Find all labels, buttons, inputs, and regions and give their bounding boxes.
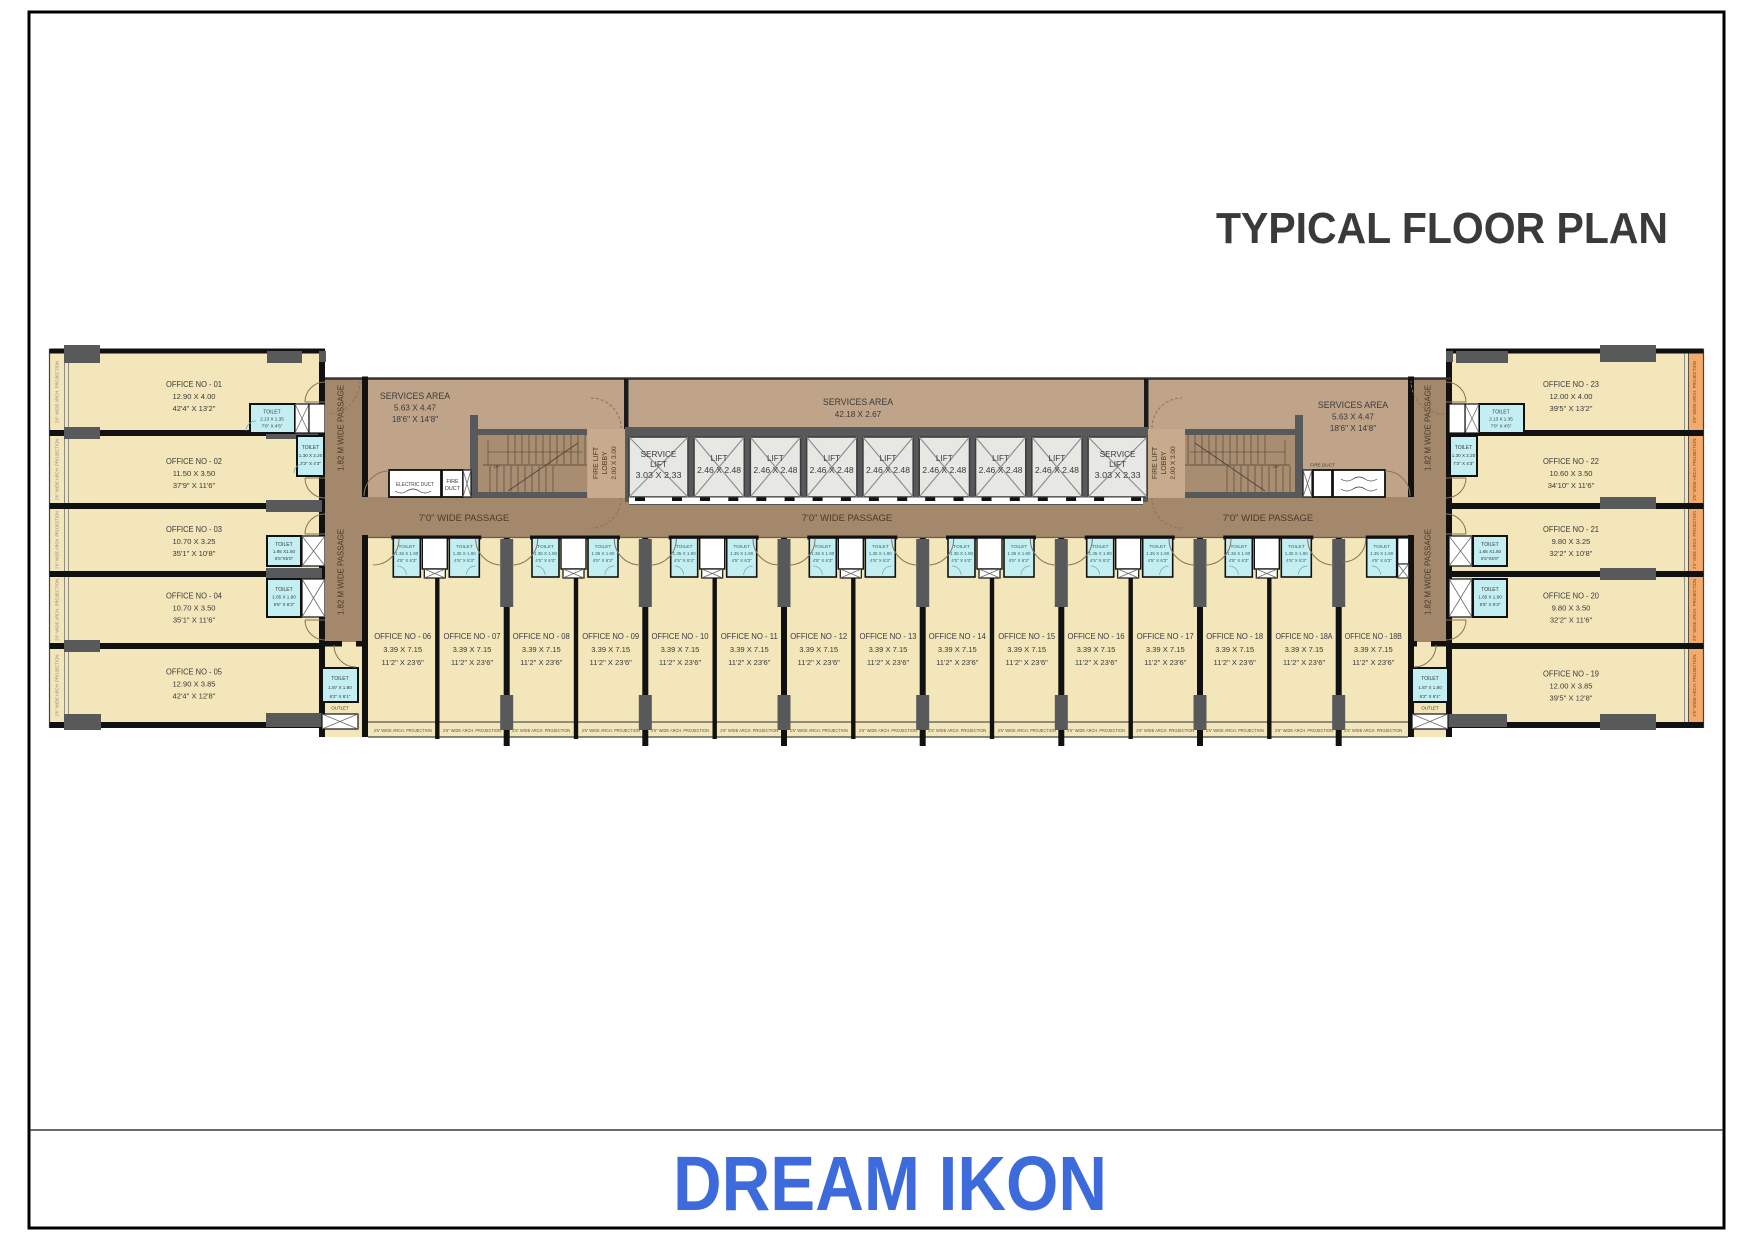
svg-text:2'6" WIDE ARCH. PROJECTION: 2'6" WIDE ARCH. PROJECTION xyxy=(1136,728,1194,733)
svg-text:TOILET: TOILET xyxy=(872,544,889,550)
svg-text:TOILET: TOILET xyxy=(1492,410,1509,416)
svg-text:11.50 X 3.50: 11.50 X 3.50 xyxy=(173,469,216,478)
svg-text:2.46 X 2.48: 2.46 X 2.48 xyxy=(922,466,967,475)
svg-text:TOILET: TOILET xyxy=(331,676,348,682)
svg-text:9.80 X 3.50: 9.80 X 3.50 xyxy=(1552,604,1591,613)
svg-text:2.13 X 1.35: 2.13 X 1.35 xyxy=(260,417,284,422)
svg-text:TOILET: TOILET xyxy=(1455,445,1472,451)
svg-text:LOBBY: LOBBY xyxy=(1161,451,1168,475)
svg-text:OFFICE NO - 23: OFFICE NO - 23 xyxy=(1543,380,1599,389)
svg-text:12.90 X 4.00: 12.90 X 4.00 xyxy=(172,392,215,401)
svg-text:OFFICE NO - 04: OFFICE NO - 04 xyxy=(166,592,223,601)
svg-text:1.82 M WIDE PASSAGE: 1.82 M WIDE PASSAGE xyxy=(336,529,346,615)
svg-text:1.35 X 1.90: 1.35 X 1.90 xyxy=(534,551,558,556)
svg-text:7'3" X 4'3": 7'3" X 4'3" xyxy=(300,461,321,466)
svg-text:3.39 X 7.15: 3.39 X 7.15 xyxy=(1077,645,1116,654)
svg-text:4'5" X 6'3": 4'5" X 6'3" xyxy=(397,558,418,563)
svg-text:FIRE LIFT: FIRE LIFT xyxy=(1152,446,1159,479)
svg-text:11'2" X 23'6": 11'2" X 23'6" xyxy=(798,658,841,667)
svg-text:2.46 X 2.48: 2.46 X 2.48 xyxy=(866,466,911,475)
svg-text:4'5" X 6'3": 4'5" X 6'3" xyxy=(674,558,695,563)
svg-text:1.35 X 1.90: 1.35 X 1.90 xyxy=(1285,551,1309,556)
svg-text:3.39 X 7.15: 3.39 X 7.15 xyxy=(1285,645,1324,654)
svg-text:3.39 X 7.15: 3.39 X 7.15 xyxy=(522,645,561,654)
svg-text:11'2" X 23'6": 11'2" X 23'6" xyxy=(1283,658,1326,667)
svg-text:2'6" WIDE ARCH. PROJECTION: 2'6" WIDE ARCH. PROJECTION xyxy=(1692,361,1697,423)
svg-text:2.46 X 2.48: 2.46 X 2.48 xyxy=(697,466,742,475)
svg-text:11'2" X 23'6": 11'2" X 23'6" xyxy=(1214,658,1257,667)
svg-text:2'6" WIDE ARCH. PROJECTION: 2'6" WIDE ARCH. PROJECTION xyxy=(1692,439,1697,501)
svg-text:2'6" WIDE ARCH. PROJECTION: 2'6" WIDE ARCH. PROJECTION xyxy=(998,728,1056,733)
svg-text:11'2" X 23'6": 11'2" X 23'6" xyxy=(1006,658,1049,667)
svg-text:OFFICE NO - 12: OFFICE NO - 12 xyxy=(790,632,847,641)
svg-text:3.39 X 7.15: 3.39 X 7.15 xyxy=(799,645,838,654)
svg-text:SERVICE: SERVICE xyxy=(1100,450,1136,459)
svg-text:4'5" X 6'3": 4'5" X 6'3" xyxy=(1229,558,1250,563)
svg-text:OFFICE NO - 05: OFFICE NO - 05 xyxy=(166,668,223,677)
svg-text:3.39 X 7.15: 3.39 X 7.15 xyxy=(1146,645,1185,654)
svg-text:7'0" X 4'5": 7'0" X 4'5" xyxy=(262,424,283,429)
svg-text:39'5" X 13'2": 39'5" X 13'2" xyxy=(1550,404,1593,413)
svg-text:1.35 X 1.90: 1.35 X 1.90 xyxy=(395,551,419,556)
svg-text:3.39 X 7.15: 3.39 X 7.15 xyxy=(1215,645,1254,654)
svg-text:11'2" X 23'6": 11'2" X 23'6" xyxy=(590,658,633,667)
svg-text:2'6" WIDE ARCH. PROJECTION: 2'6" WIDE ARCH. PROJECTION xyxy=(55,439,60,501)
svg-text:3.39 X 7.15: 3.39 X 7.15 xyxy=(591,645,630,654)
svg-text:10.70 X 3.50: 10.70 X 3.50 xyxy=(172,604,215,613)
svg-text:OFFICE NO - 10: OFFICE NO - 10 xyxy=(652,632,710,641)
svg-text:2'6" WIDE ARCH. PROJECTION: 2'6" WIDE ARCH. PROJECTION xyxy=(512,728,570,733)
svg-text:11'2" X 23'6": 11'2" X 23'6" xyxy=(1352,658,1395,667)
svg-text:11'2" X 23'6": 11'2" X 23'6" xyxy=(1075,658,1118,667)
svg-text:OUTLET: OUTLET xyxy=(1421,706,1439,711)
svg-text:SERVICE: SERVICE xyxy=(641,450,677,459)
svg-text:SERVICES AREA: SERVICES AREA xyxy=(380,391,450,401)
svg-text:1.30 X 2.20: 1.30 X 2.20 xyxy=(299,453,323,458)
svg-text:35'1" X 11'6": 35'1" X 11'6" xyxy=(173,616,216,625)
svg-text:42.18 X 2.67: 42.18 X 2.67 xyxy=(835,410,882,419)
svg-text:OFFICE NO - 07: OFFICE NO - 07 xyxy=(444,632,501,641)
svg-text:3.39 X 7.15: 3.39 X 7.15 xyxy=(869,645,908,654)
svg-text:42'4" X 12'8": 42'4" X 12'8" xyxy=(173,692,216,701)
svg-text:OFFICE NO - 18: OFFICE NO - 18 xyxy=(1206,632,1263,641)
svg-text:2'6" WIDE ARCH. PROJECTION: 2'6" WIDE ARCH. PROJECTION xyxy=(374,728,432,733)
svg-text:1.65 X1.50: 1.65 X1.50 xyxy=(1479,549,1502,554)
svg-text:TOILET: TOILET xyxy=(275,542,292,548)
svg-text:OFFICE NO - 18A: OFFICE NO - 18A xyxy=(1276,632,1334,641)
svg-text:1.82 M WIDE PASSAGE: 1.82 M WIDE PASSAGE xyxy=(336,385,346,471)
svg-text:TOILET: TOILET xyxy=(595,544,612,550)
svg-text:4'5" X 6'3": 4'5" X 6'3" xyxy=(951,558,972,563)
svg-text:11'2" X 23'6": 11'2" X 23'6" xyxy=(451,658,494,667)
svg-text:11'2" X 23'6": 11'2" X 23'6" xyxy=(520,658,563,667)
svg-text:1.35 X 1.90: 1.35 X 1.90 xyxy=(673,551,697,556)
svg-text:4'5" X 6'3": 4'5" X 6'3" xyxy=(1371,558,1392,563)
svg-text:4'5" X 6'3": 4'5" X 6'3" xyxy=(731,558,752,563)
svg-text:ELECTRIC DUCT: ELECTRIC DUCT xyxy=(396,482,434,488)
svg-text:1.35 X 1.90: 1.35 X 1.90 xyxy=(1370,551,1394,556)
svg-text:4'5" X 6'3": 4'5" X 6'3" xyxy=(813,558,834,563)
svg-text:5.63 X 4.47: 5.63 X 4.47 xyxy=(394,404,436,413)
svg-text:2'6" WIDE ARCH. PROJECTION: 2'6" WIDE ARCH. PROJECTION xyxy=(1692,655,1697,717)
svg-text:LIFT: LIFT xyxy=(1109,460,1126,469)
svg-text:UP: UP xyxy=(494,464,500,469)
svg-text:4'5" X 6'3": 4'5" X 6'3" xyxy=(1147,558,1168,563)
svg-text:TOILET: TOILET xyxy=(398,544,415,550)
svg-text:39'5" X 12'8": 39'5" X 12'8" xyxy=(1550,694,1593,703)
svg-text:11'2" X 23'6": 11'2" X 23'6" xyxy=(867,658,910,667)
svg-text:7'0" WIDE PASSAGE: 7'0" WIDE PASSAGE xyxy=(802,513,893,524)
svg-text:FIRE LIFT: FIRE LIFT xyxy=(593,446,600,479)
svg-text:34'10" X 11'6": 34'10" X 11'6" xyxy=(1548,481,1595,490)
svg-text:4'5" X 6'3": 4'5" X 6'3" xyxy=(1009,558,1030,563)
svg-text:OFFICE NO - 02: OFFICE NO - 02 xyxy=(166,457,222,466)
svg-text:3.03 X 2.33: 3.03 X 2.33 xyxy=(1095,471,1142,480)
svg-text:3.39 X 7.15: 3.39 X 7.15 xyxy=(453,645,492,654)
svg-text:11'2" X 23'6": 11'2" X 23'6" xyxy=(382,658,425,667)
svg-text:1.35 X 1.90: 1.35 X 1.90 xyxy=(811,551,835,556)
svg-text:TOILET: TOILET xyxy=(676,544,693,550)
svg-text:2'6" WIDE ARCH. PROJECTION: 2'6" WIDE ARCH. PROJECTION xyxy=(1344,728,1402,733)
svg-text:3.39 X 7.15: 3.39 X 7.15 xyxy=(938,645,977,654)
svg-text:6'2" X 6'1": 6'2" X 6'1" xyxy=(1420,694,1441,699)
svg-text:1.65 X1.50: 1.65 X1.50 xyxy=(273,549,296,554)
svg-text:2.46 X 2.48: 2.46 X 2.48 xyxy=(810,466,855,475)
svg-text:11'2" X 23'6": 11'2" X 23'6" xyxy=(728,658,771,667)
svg-text:LIFT: LIFT xyxy=(936,454,953,463)
svg-text:4'5" X 6'3": 4'5" X 6'3" xyxy=(535,558,556,563)
svg-text:LIFT: LIFT xyxy=(880,454,897,463)
svg-text:TOILET: TOILET xyxy=(1149,544,1166,550)
svg-text:2'6" WIDE ARCH. PROJECTION: 2'6" WIDE ARCH. PROJECTION xyxy=(1692,511,1697,569)
svg-text:OFFICE NO - 15: OFFICE NO - 15 xyxy=(998,632,1056,641)
svg-text:TOILET: TOILET xyxy=(1092,544,1109,550)
svg-text:UP: UP xyxy=(1273,464,1279,469)
svg-text:OFFICE NO - 17: OFFICE NO - 17 xyxy=(1137,632,1194,641)
svg-text:32'2" X 11'6": 32'2" X 11'6" xyxy=(1550,616,1593,625)
svg-text:SERVICES AREA: SERVICES AREA xyxy=(1318,400,1388,410)
svg-text:1.87 X 1.80: 1.87 X 1.80 xyxy=(1418,685,1442,690)
svg-text:TOILET: TOILET xyxy=(263,410,280,416)
svg-text:1.35 X 1.90: 1.35 X 1.90 xyxy=(1146,551,1170,556)
svg-text:OFFICE NO - 09: OFFICE NO - 09 xyxy=(582,632,639,641)
svg-text:LIFT: LIFT xyxy=(767,454,784,463)
svg-text:OFFICE NO - 06: OFFICE NO - 06 xyxy=(374,632,431,641)
svg-text:2'6" WIDE ARCH. PROJECTION: 2'6" WIDE ARCH. PROJECTION xyxy=(720,728,778,733)
svg-text:42'4" X 13'2": 42'4" X 13'2" xyxy=(173,404,216,413)
svg-text:OFFICE NO - 16: OFFICE NO - 16 xyxy=(1068,632,1125,641)
svg-text:TOILET: TOILET xyxy=(275,587,292,593)
svg-text:2'6" WIDE ARCH. PROJECTION: 2'6" WIDE ARCH. PROJECTION xyxy=(859,728,917,733)
svg-text:2.46 X 2.48: 2.46 X 2.48 xyxy=(979,466,1024,475)
svg-text:2.00 X 3.00: 2.00 X 3.00 xyxy=(1170,446,1177,480)
svg-text:7'0" X 4'5": 7'0" X 4'5" xyxy=(1491,424,1512,429)
svg-text:TOILET: TOILET xyxy=(733,544,750,550)
svg-text:2.46 X 2.48: 2.46 X 2.48 xyxy=(1035,466,1080,475)
svg-text:1.35 X 1.90: 1.35 X 1.90 xyxy=(1089,551,1113,556)
svg-text:11'2" X 23'6": 11'2" X 23'6" xyxy=(936,658,979,667)
svg-text:11'2" X 23'6": 11'2" X 23'6" xyxy=(659,658,702,667)
svg-text:1.35 X 1.90: 1.35 X 1.90 xyxy=(869,551,893,556)
svg-text:3.39 X 7.15: 3.39 X 7.15 xyxy=(383,645,422,654)
svg-text:SERVICES AREA: SERVICES AREA xyxy=(823,397,893,407)
svg-text:TOILET: TOILET xyxy=(456,544,473,550)
svg-text:TOILET: TOILET xyxy=(1421,676,1438,682)
svg-text:LIFT: LIFT xyxy=(992,454,1009,463)
svg-text:5'5"X5'0": 5'5"X5'0" xyxy=(1481,556,1500,561)
svg-text:2.00 X 3.00: 2.00 X 3.00 xyxy=(611,446,618,480)
svg-text:12.90 X 3.85: 12.90 X 3.85 xyxy=(172,680,215,689)
svg-text:10.60 X 3.50: 10.60 X 3.50 xyxy=(1549,469,1592,478)
svg-text:2'6" WIDE ARCH. PROJECTION: 2'6" WIDE ARCH. PROJECTION xyxy=(582,728,640,733)
svg-text:12.00 X 4.00: 12.00 X 4.00 xyxy=(1549,392,1592,401)
svg-text:OFFICE NO - 11: OFFICE NO - 11 xyxy=(721,632,778,641)
svg-text:3.39 X 7.15: 3.39 X 7.15 xyxy=(661,645,700,654)
svg-text:5'5"X5'0": 5'5"X5'0" xyxy=(275,556,294,561)
svg-text:OFFICE NO - 18B: OFFICE NO - 18B xyxy=(1345,632,1402,641)
svg-text:2'6" WIDE ARCH. PROJECTION: 2'6" WIDE ARCH. PROJECTION xyxy=(928,728,986,733)
svg-text:OFFICE NO - 21: OFFICE NO - 21 xyxy=(1543,525,1599,534)
svg-text:3.39 X 7.15: 3.39 X 7.15 xyxy=(730,645,769,654)
svg-text:2'6" WIDE ARCH. PROJECTION: 2'6" WIDE ARCH. PROJECTION xyxy=(55,579,60,641)
svg-text:TOILET: TOILET xyxy=(953,544,970,550)
svg-text:1.35 X 1.90: 1.35 X 1.90 xyxy=(730,551,754,556)
svg-text:4'5" X 6'3": 4'5" X 6'3" xyxy=(1286,558,1307,563)
svg-text:1.82 M WIDE PASSAGE: 1.82 M WIDE PASSAGE xyxy=(1423,529,1433,615)
svg-text:5.63 X 4.47: 5.63 X 4.47 xyxy=(1332,413,1374,422)
svg-text:1.35 X 1.90: 1.35 X 1.90 xyxy=(1227,551,1251,556)
svg-text:6'2" X 6'1": 6'2" X 6'1" xyxy=(330,694,351,699)
svg-text:TOILET: TOILET xyxy=(302,445,319,451)
svg-text:1.65 X 1.90: 1.65 X 1.90 xyxy=(1478,595,1502,600)
svg-text:11'2" X 23'6": 11'2" X 23'6" xyxy=(1144,658,1187,667)
svg-text:18'6" X 14'8": 18'6" X 14'8" xyxy=(392,415,438,424)
svg-text:FIRE DUCT: FIRE DUCT xyxy=(1310,463,1335,468)
svg-text:DREAM IKON: DREAM IKON xyxy=(673,1141,1107,1227)
svg-text:2'6" WIDE ARCH. PROJECTION: 2'6" WIDE ARCH. PROJECTION xyxy=(1275,728,1333,733)
svg-text:18'6" X 14'8": 18'6" X 14'8" xyxy=(1330,424,1376,433)
svg-text:LIFT: LIFT xyxy=(1048,454,1065,463)
svg-text:LIFT: LIFT xyxy=(650,460,667,469)
svg-text:TOILET: TOILET xyxy=(537,544,554,550)
svg-text:OFFICE NO - 13: OFFICE NO - 13 xyxy=(860,632,917,641)
svg-text:4'5" X 6'3": 4'5" X 6'3" xyxy=(1090,558,1111,563)
svg-text:1.35 X 1.90: 1.35 X 1.90 xyxy=(950,551,974,556)
svg-text:TOILET: TOILET xyxy=(1481,587,1498,593)
svg-text:2'6" WIDE ARCH. PROJECTION: 2'6" WIDE ARCH. PROJECTION xyxy=(443,728,501,733)
svg-text:10.70 X 3.25: 10.70 X 3.25 xyxy=(172,537,215,546)
svg-text:2'6" WIDE ARCH. PROJECTION: 2'6" WIDE ARCH. PROJECTION xyxy=(651,728,709,733)
svg-text:7'0" WIDE PASSAGE: 7'0" WIDE PASSAGE xyxy=(1223,513,1314,524)
svg-text:TOILET: TOILET xyxy=(1230,544,1247,550)
svg-text:OUTLET: OUTLET xyxy=(331,706,349,711)
svg-text:TYPICAL FLOOR PLAN: TYPICAL FLOOR PLAN xyxy=(1216,204,1668,253)
svg-text:OFFICE NO - 03: OFFICE NO - 03 xyxy=(166,525,222,534)
svg-text:3.39 X 7.15: 3.39 X 7.15 xyxy=(1007,645,1046,654)
svg-text:1.82 M WIDE PASSAGE: 1.82 M WIDE PASSAGE xyxy=(1423,385,1433,471)
svg-text:2'6" WIDE ARCH. PROJECTION: 2'6" WIDE ARCH. PROJECTION xyxy=(1206,728,1264,733)
svg-text:2'6" WIDE ARCH. PROJECTION: 2'6" WIDE ARCH. PROJECTION xyxy=(790,728,848,733)
svg-text:LOBBY: LOBBY xyxy=(602,451,609,475)
svg-text:4'5" X 6'3": 4'5" X 6'3" xyxy=(870,558,891,563)
svg-text:2.13 X 1.35: 2.13 X 1.35 xyxy=(1489,417,1513,422)
svg-text:1.35 X 1.90: 1.35 X 1.90 xyxy=(453,551,477,556)
svg-text:2.46 X 2.48: 2.46 X 2.48 xyxy=(753,466,798,475)
svg-text:TOILET: TOILET xyxy=(1288,544,1305,550)
svg-text:OFFICE NO - 14: OFFICE NO - 14 xyxy=(929,632,987,641)
svg-text:2'6" WIDE ARCH. PROJECTION: 2'6" WIDE ARCH. PROJECTION xyxy=(1067,728,1125,733)
svg-text:9.80 X 3.25: 9.80 X 3.25 xyxy=(1552,537,1591,546)
svg-text:7'3" X 4'3": 7'3" X 4'3" xyxy=(1453,461,1474,466)
svg-text:1.35 X 1.90: 1.35 X 1.90 xyxy=(1007,551,1031,556)
svg-text:37'9" X 11'6": 37'9" X 11'6" xyxy=(173,481,216,490)
svg-text:35'1" X 10'8": 35'1" X 10'8" xyxy=(173,549,216,558)
svg-text:LIFT: LIFT xyxy=(711,454,728,463)
svg-text:TOILET: TOILET xyxy=(814,544,831,550)
svg-text:2'6" WIDE ARCH. PROJECTION: 2'6" WIDE ARCH. PROJECTION xyxy=(55,655,60,717)
svg-text:2'6" WIDE ARCH. PROJECTION: 2'6" WIDE ARCH. PROJECTION xyxy=(1692,579,1697,641)
svg-text:32'2" X 10'8": 32'2" X 10'8" xyxy=(1550,549,1593,558)
svg-text:4'5" X 6'3": 4'5" X 6'3" xyxy=(454,558,475,563)
svg-text:OFFICE NO - 01: OFFICE NO - 01 xyxy=(166,380,222,389)
svg-text:OFFICE NO - 20: OFFICE NO - 20 xyxy=(1543,592,1600,601)
svg-text:1.65 X 1.90: 1.65 X 1.90 xyxy=(272,595,296,600)
svg-text:OFFICE NO - 22: OFFICE NO - 22 xyxy=(1543,457,1599,466)
svg-text:5'5" X 6'3": 5'5" X 6'3" xyxy=(1480,602,1501,607)
svg-text:OFFICE NO - 19: OFFICE NO - 19 xyxy=(1543,670,1599,679)
svg-text:5'5" X 6'3": 5'5" X 6'3" xyxy=(274,602,295,607)
svg-text:LIFT: LIFT xyxy=(823,454,840,463)
svg-text:OFFICE NO - 08: OFFICE NO - 08 xyxy=(513,632,570,641)
svg-text:DUCT: DUCT xyxy=(445,486,461,492)
svg-text:TOILET: TOILET xyxy=(1481,542,1498,548)
svg-text:3.39 X 7.15: 3.39 X 7.15 xyxy=(1354,645,1393,654)
svg-text:2'6" WIDE ARCH. PROJECTION: 2'6" WIDE ARCH. PROJECTION xyxy=(55,361,60,423)
svg-text:TOILET: TOILET xyxy=(1373,544,1390,550)
svg-text:1.35 X 1.90: 1.35 X 1.90 xyxy=(591,551,615,556)
svg-text:3.03 X 2.33: 3.03 X 2.33 xyxy=(636,471,683,480)
svg-text:1.30 X 2.20: 1.30 X 2.20 xyxy=(1452,453,1476,458)
svg-text:2'6" WIDE ARCH. PROJECTION: 2'6" WIDE ARCH. PROJECTION xyxy=(55,511,60,569)
svg-text:7'0" WIDE PASSAGE: 7'0" WIDE PASSAGE xyxy=(419,513,510,524)
svg-text:4'5" X 6'3": 4'5" X 6'3" xyxy=(593,558,614,563)
svg-text:TOILET: TOILET xyxy=(1011,544,1028,550)
svg-text:FIRE: FIRE xyxy=(446,479,459,485)
svg-text:12.00 X 3.85: 12.00 X 3.85 xyxy=(1549,682,1592,691)
svg-text:1.87 X 1.80: 1.87 X 1.80 xyxy=(328,685,352,690)
